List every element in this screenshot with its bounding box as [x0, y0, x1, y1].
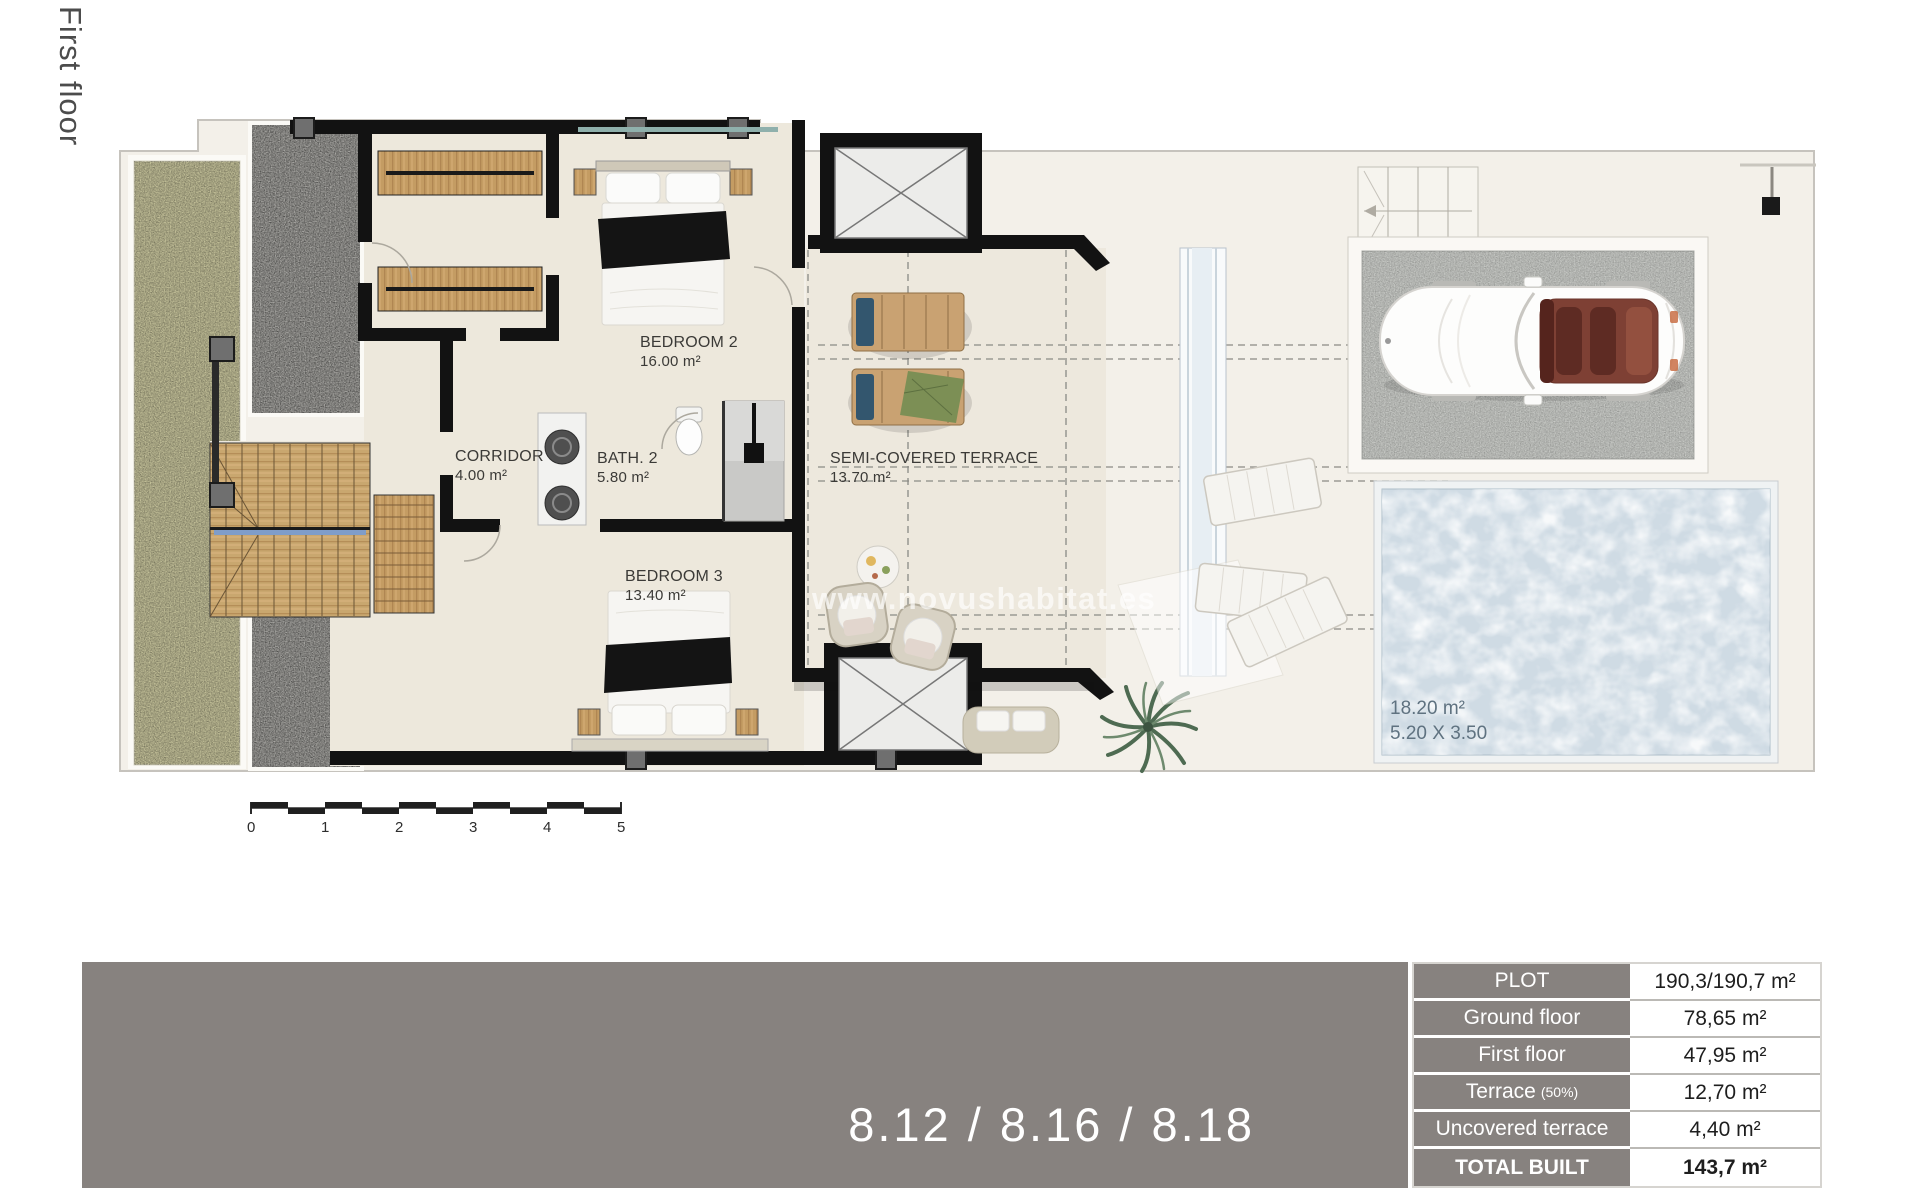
elevator-shaft-top — [835, 148, 967, 238]
row-label: First floor — [1414, 1038, 1630, 1075]
gravel-patio-top — [248, 121, 364, 417]
row-label-text: Terrace — [1466, 1080, 1536, 1104]
table-row: First floor 47,95 m² — [1414, 1038, 1820, 1075]
unit-numbers: 8.12 / 8.16 / 8.18 — [848, 1097, 1255, 1152]
scale-tick: 3 — [469, 819, 477, 836]
room-area: 5.80 m² — [597, 468, 658, 487]
room-label-bedroom2: BEDROOM 2 16.00 m² — [640, 333, 738, 371]
row-value: 4,40 m² — [1630, 1112, 1820, 1149]
scale-tick: 4 — [543, 819, 551, 836]
areas-table: PLOT 190,3/190,7 m² Ground floor 78,65 m… — [1412, 962, 1822, 1188]
outdoor-sofa — [963, 707, 1059, 753]
row-value: 143,7 m² — [1630, 1149, 1820, 1186]
room-label-corridor: CORRIDOR 4.00 m² — [455, 447, 544, 485]
row-label-text: TOTAL BUILT — [1455, 1156, 1589, 1180]
row-label-text: Uncovered terrace — [1436, 1117, 1609, 1141]
elevator-shaft-bottom — [839, 658, 967, 750]
room-area: 13.40 m² — [625, 586, 723, 605]
room-label-bedroom3: BEDROOM 3 13.40 m² — [625, 567, 723, 605]
car — [1380, 277, 1684, 405]
row-label: Uncovered terrace — [1414, 1112, 1630, 1149]
pool-dimensions: 5.20 X 3.50 — [1390, 721, 1487, 746]
watermark: www.novushabitat.es — [812, 581, 1156, 617]
row-label-text: First floor — [1478, 1043, 1566, 1067]
row-value: 47,95 m² — [1630, 1038, 1820, 1075]
row-value: 190,3/190,7 m² — [1630, 964, 1820, 1001]
row-value: 12,70 m² — [1630, 1075, 1820, 1112]
scale-tick: 0 — [247, 819, 255, 836]
table-row: Uncovered terrace 4,40 m² — [1414, 1112, 1820, 1149]
room-area: 16.00 m² — [640, 352, 738, 371]
room-name: SEMI-COVERED TERRACE — [830, 449, 1038, 468]
pool-area: 18.20 m² — [1390, 696, 1487, 721]
table-row-total: TOTAL BUILT 143,7 m² — [1414, 1149, 1820, 1186]
scale-bar-graphic — [250, 799, 622, 817]
scale-tick: 2 — [395, 819, 403, 836]
slat-wardrobe — [374, 495, 434, 613]
floor-plan — [118, 115, 1818, 775]
pool-label: 18.20 m² 5.20 X 3.50 — [1390, 696, 1487, 746]
table-row: Terrace (50%) 12,70 m² — [1414, 1075, 1820, 1112]
row-value: 78,65 m² — [1630, 1001, 1820, 1038]
room-label-terrace: SEMI-COVERED TERRACE 13.70 m² — [830, 449, 1038, 487]
floor-label: First floor — [52, 6, 88, 146]
scale-tick: 5 — [617, 819, 625, 836]
room-name: BEDROOM 2 — [640, 333, 738, 352]
room-name: CORRIDOR — [455, 447, 544, 466]
scale-tick: 1 — [321, 819, 329, 836]
laundry-appliances — [538, 413, 586, 525]
bedroom2-window — [578, 127, 778, 132]
room-area: 4.00 m² — [455, 466, 544, 485]
scale-bar: 0 1 2 3 4 5 — [250, 799, 622, 841]
table-row: Ground floor 78,65 m² — [1414, 1001, 1820, 1038]
row-label: Terrace (50%) — [1414, 1075, 1630, 1112]
bottom-banner: 8.12 / 8.16 / 8.18 — [82, 962, 1408, 1188]
row-label: PLOT — [1414, 964, 1630, 1001]
room-label-bath2: BATH. 2 5.80 m² — [597, 449, 658, 487]
room-name: BEDROOM 3 — [625, 567, 723, 586]
row-label-text: Ground floor — [1464, 1006, 1581, 1030]
row-label-note: (50%) — [1541, 1084, 1578, 1100]
room-name: BATH. 2 — [597, 449, 658, 468]
row-label: Ground floor — [1414, 1001, 1630, 1038]
table-row: PLOT 190,3/190,7 m² — [1414, 964, 1820, 1001]
staircase — [210, 443, 370, 617]
room-area: 13.70 m² — [830, 468, 1038, 487]
row-label: TOTAL BUILT — [1414, 1149, 1630, 1186]
row-label-text: PLOT — [1495, 969, 1550, 993]
